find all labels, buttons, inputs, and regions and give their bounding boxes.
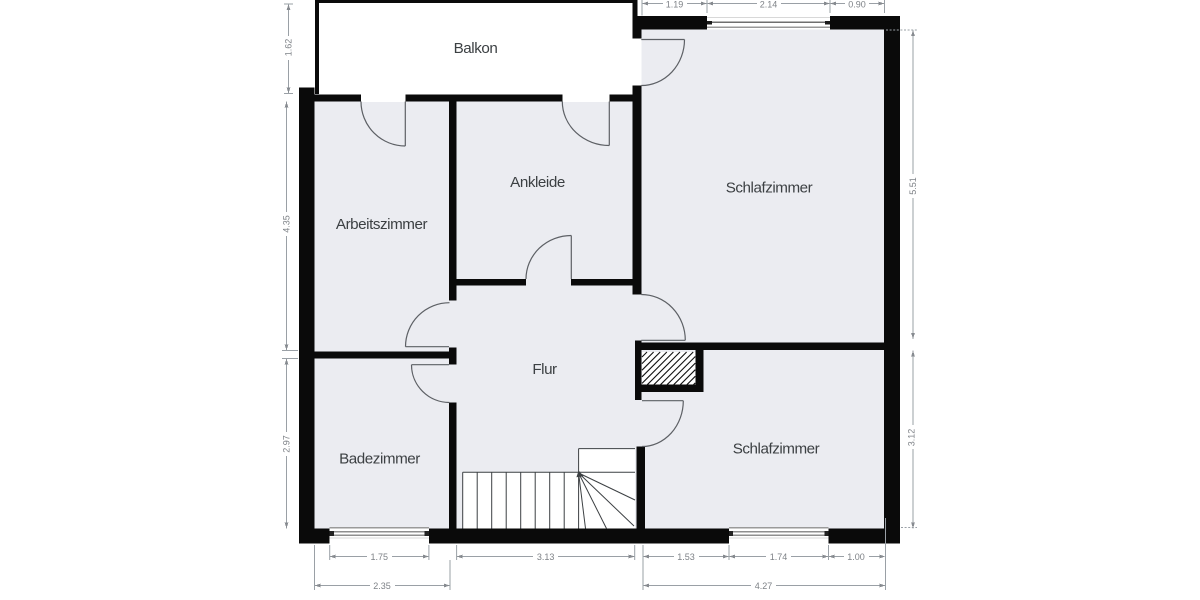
svg-text:Badezimmer: Badezimmer	[339, 451, 420, 468]
svg-text:2.97: 2.97	[282, 435, 292, 453]
svg-text:Flur: Flur	[532, 361, 557, 378]
svg-text:Schlafzimmer: Schlafzimmer	[726, 180, 813, 197]
svg-text:Schlafzimmer: Schlafzimmer	[733, 441, 820, 458]
svg-text:2.14: 2.14	[760, 0, 778, 10]
svg-text:5.51: 5.51	[908, 177, 918, 195]
svg-text:Ankleide: Ankleide	[510, 174, 565, 191]
svg-text:0.90: 0.90	[848, 0, 866, 10]
svg-text:1.53: 1.53	[677, 552, 695, 562]
svg-text:4.27: 4.27	[755, 581, 773, 591]
svg-text:1.74: 1.74	[770, 552, 788, 562]
svg-text:3.13: 3.13	[537, 552, 555, 562]
svg-text:1.00: 1.00	[847, 552, 865, 562]
svg-text:Balkon: Balkon	[454, 40, 498, 57]
svg-text:Arbeitszimmer: Arbeitszimmer	[336, 216, 428, 233]
svg-text:3.12: 3.12	[907, 429, 917, 447]
svg-text:4.35: 4.35	[282, 215, 292, 233]
svg-text:2.35: 2.35	[373, 581, 391, 591]
svg-text:1.19: 1.19	[666, 0, 684, 10]
svg-text:1.75: 1.75	[371, 552, 389, 562]
svg-text:1.62: 1.62	[284, 39, 294, 57]
